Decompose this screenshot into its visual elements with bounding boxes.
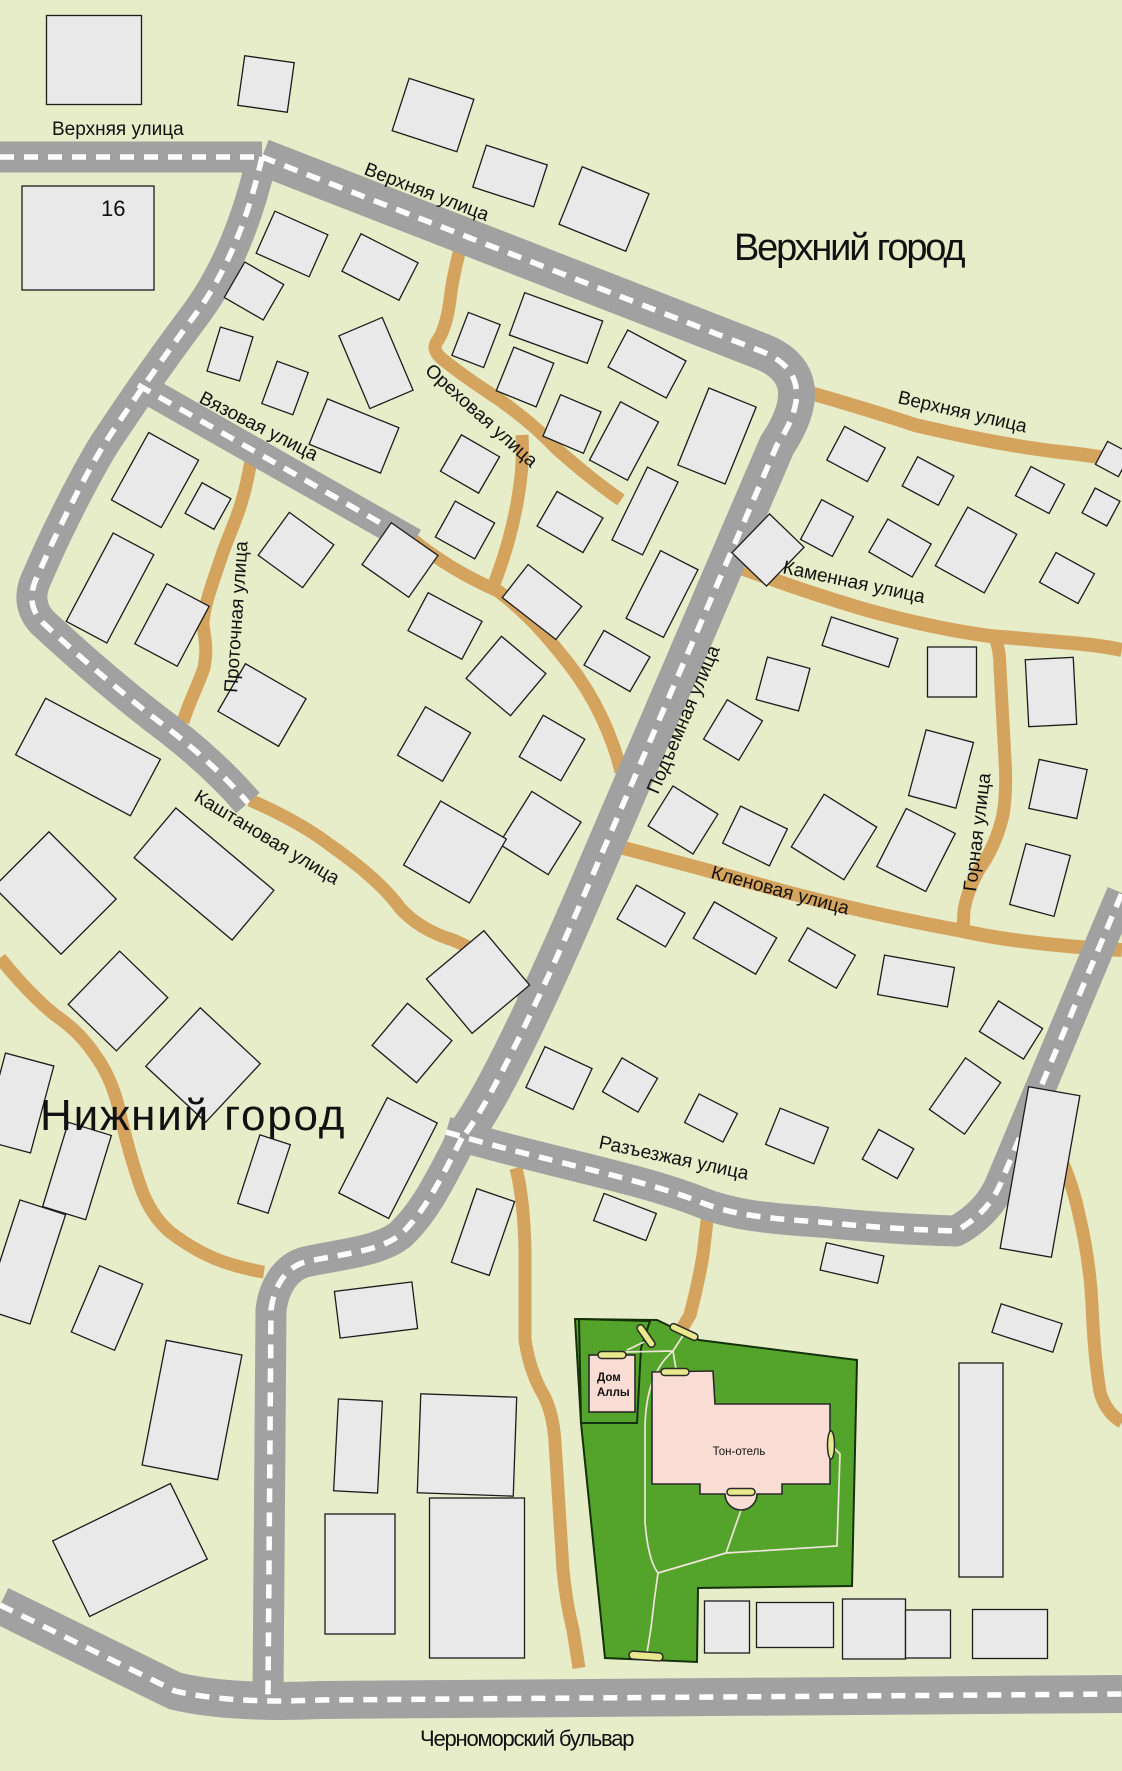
svg-text:Черноморский бульвар: Черноморский бульвар (420, 1726, 634, 1751)
svg-text:Нижний город: Нижний город (40, 1091, 346, 1140)
svg-text:Верхний город: Верхний город (734, 227, 965, 269)
svg-text:Аллы: Аллы (597, 1387, 630, 1399)
svg-text:16: 16 (101, 196, 125, 221)
svg-text:Дом: Дом (597, 1372, 621, 1384)
svg-text:Тон-отель: Тон-отель (713, 1446, 766, 1458)
svg-text:Верхняя улица: Верхняя улица (52, 119, 184, 140)
